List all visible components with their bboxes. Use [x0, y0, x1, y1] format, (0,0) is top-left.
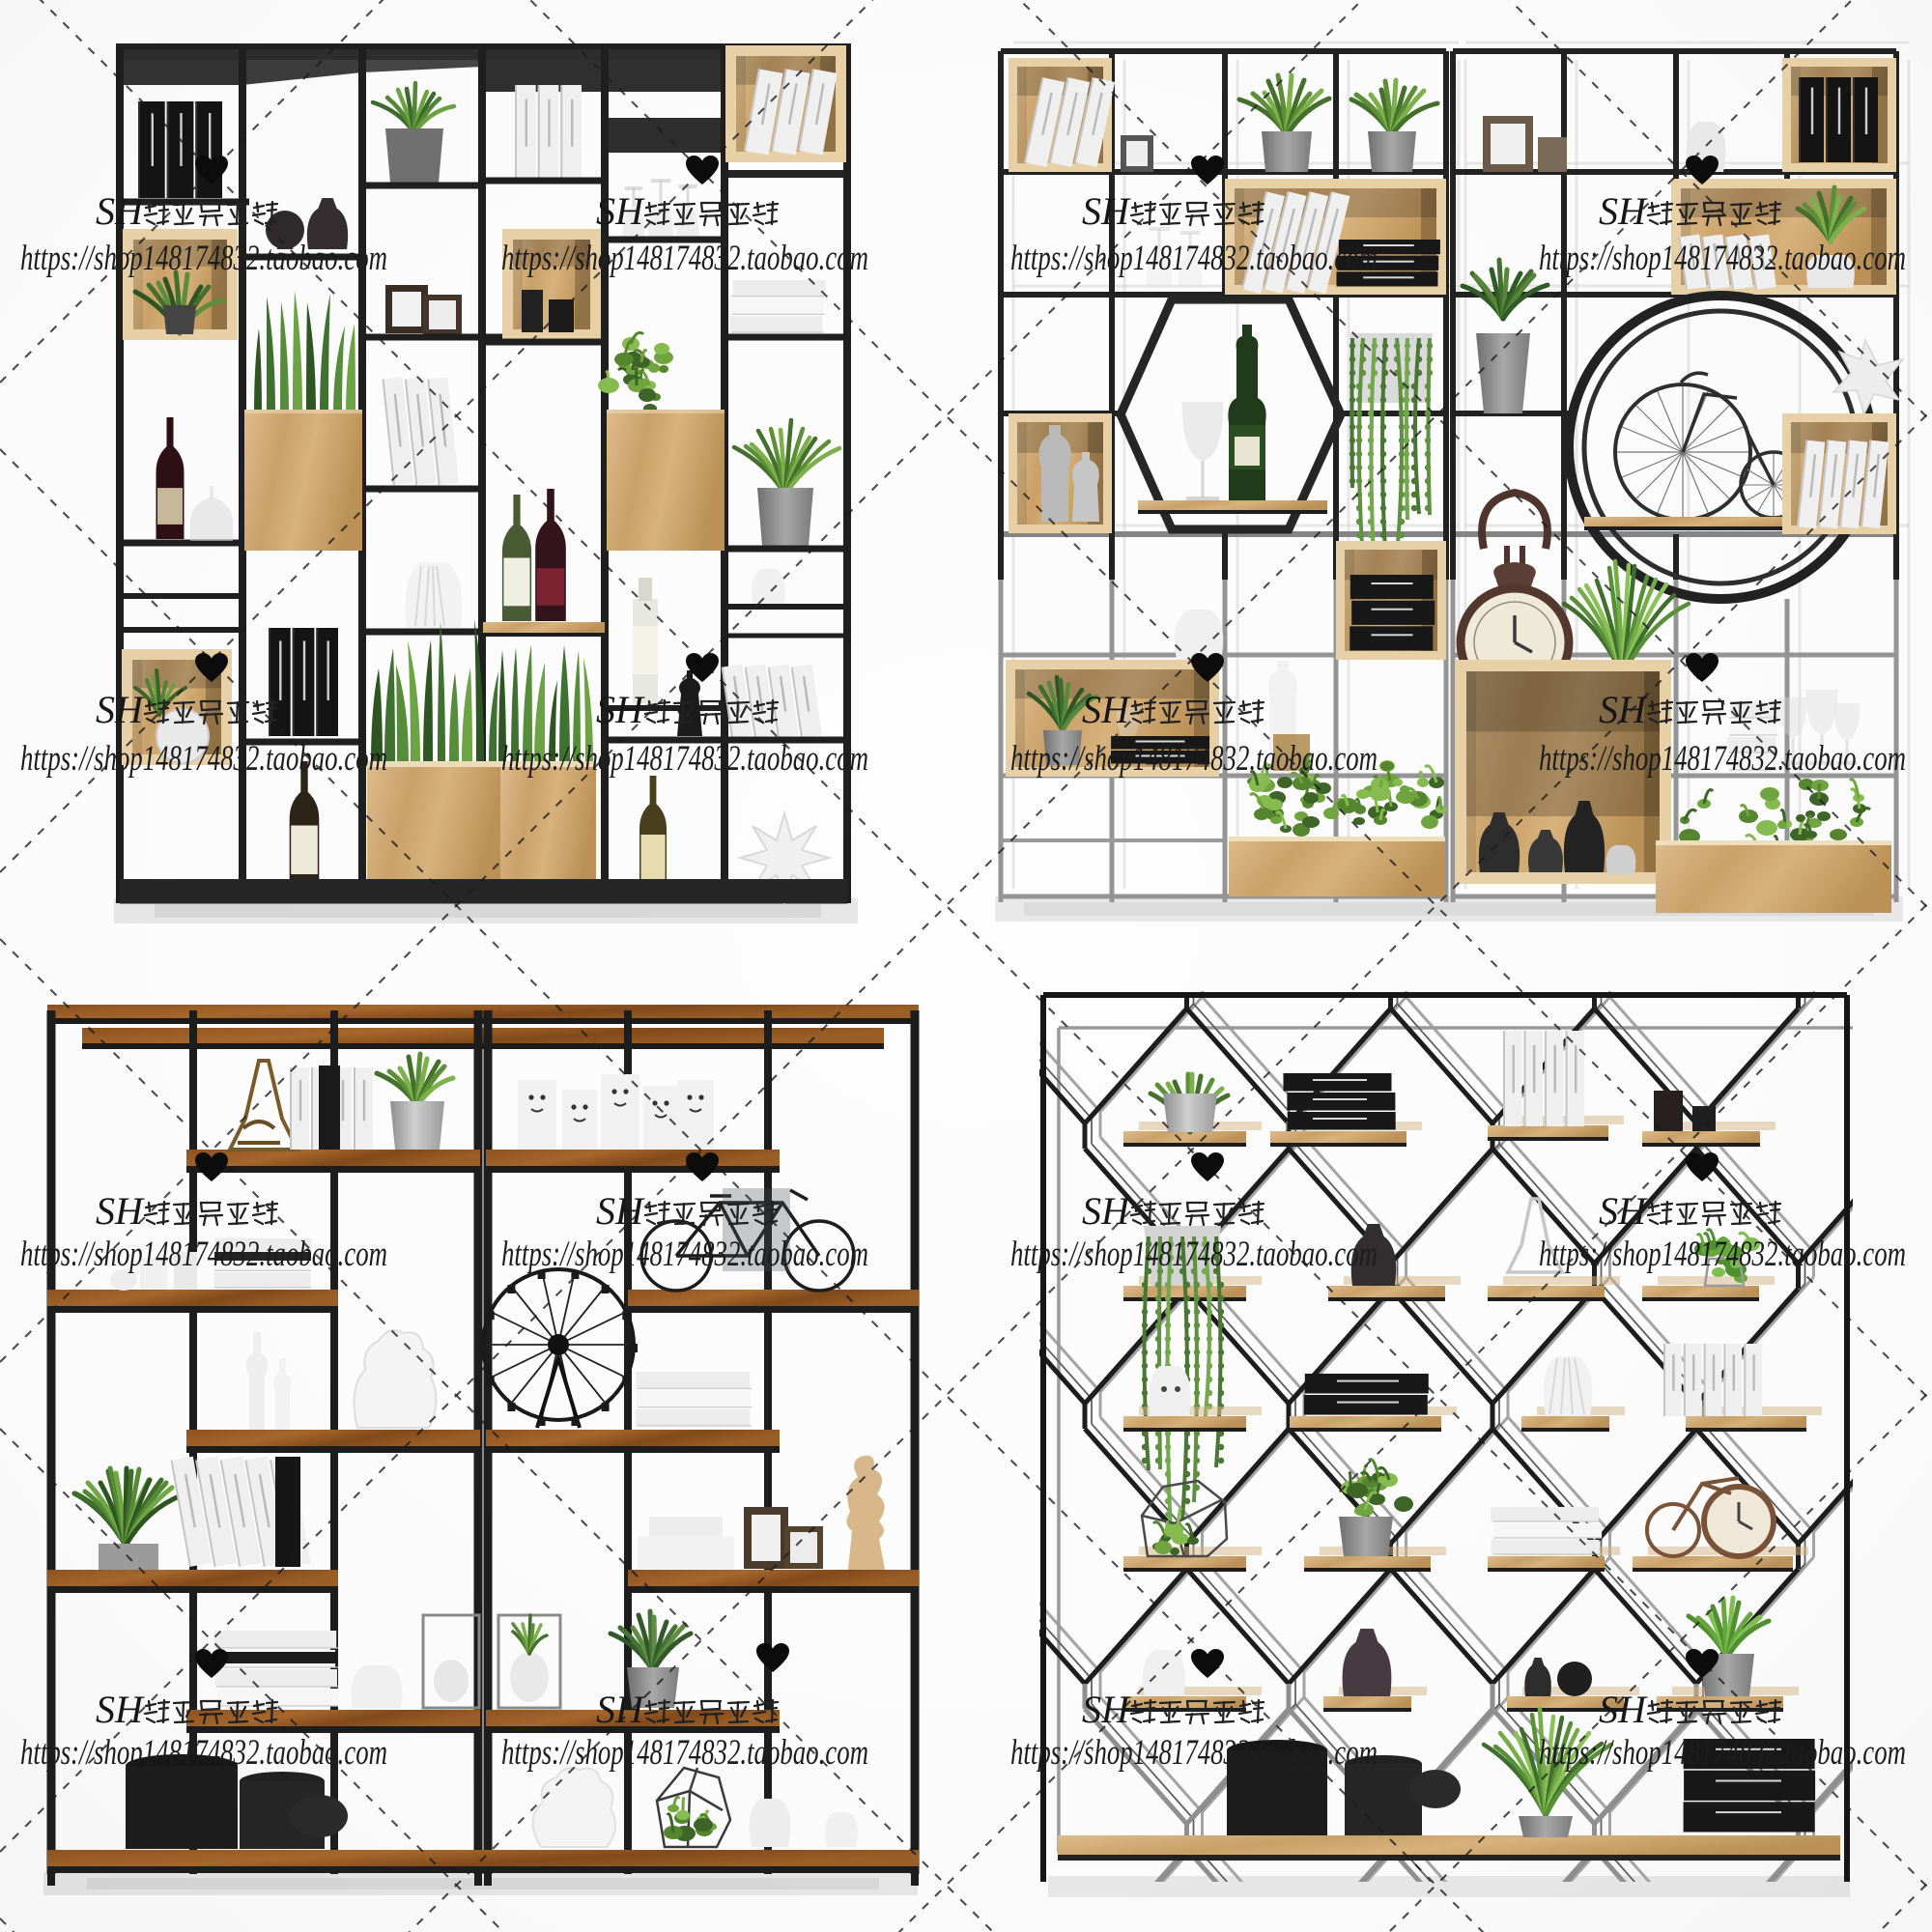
svg-text:SH: SH [1082, 1688, 1131, 1731]
svg-text:https://shop148174832.taobao.c: https://shop148174832.taobao.com [501, 239, 868, 278]
svg-text:https://shop148174832.taobao.c: https://shop148174832.taobao.com [1539, 1235, 1906, 1274]
svg-text:https://shop148174832.taobao.c: https://shop148174832.taobao.com [20, 1235, 387, 1274]
svg-text:SH: SH [96, 1688, 145, 1731]
svg-text:SH: SH [1599, 688, 1648, 731]
svg-text:SH: SH [96, 1189, 145, 1233]
svg-text:SH: SH [1599, 1189, 1648, 1233]
svg-text:https://shop148174832.taobao.c: https://shop148174832.taobao.com [501, 739, 868, 779]
svg-text:SH: SH [96, 688, 145, 731]
svg-text:SH: SH [1082, 1189, 1131, 1233]
svg-text:https://shop148174832.taobao.c: https://shop148174832.taobao.com [1539, 239, 1906, 278]
svg-text:SH: SH [96, 189, 145, 233]
svg-text:SH: SH [1599, 189, 1648, 233]
svg-text:https://shop148174832.taobao.c: https://shop148174832.taobao.com [1010, 1733, 1378, 1773]
svg-text:https://shop148174832.taobao.c: https://shop148174832.taobao.com [20, 239, 387, 278]
svg-text:https://shop148174832.taobao.c: https://shop148174832.taobao.com [1010, 239, 1378, 278]
svg-text:SH: SH [1082, 688, 1131, 731]
svg-text:SH: SH [596, 1189, 645, 1233]
svg-text:SH: SH [596, 1688, 645, 1731]
svg-text:https://shop148174832.taobao.c: https://shop148174832.taobao.com [20, 1733, 387, 1773]
svg-text:https://shop148174832.taobao.c: https://shop148174832.taobao.com [501, 1235, 868, 1274]
svg-text:https://shop148174832.taobao.c: https://shop148174832.taobao.com [1539, 739, 1906, 779]
svg-text:https://shop148174832.taobao.c: https://shop148174832.taobao.com [1010, 1235, 1378, 1274]
svg-text:SH: SH [1082, 189, 1131, 233]
svg-text:https://shop148174832.taobao.c: https://shop148174832.taobao.com [501, 1733, 868, 1773]
svg-text:SH: SH [1599, 1688, 1648, 1731]
svg-text:https://shop148174832.taobao.c: https://shop148174832.taobao.com [1539, 1733, 1906, 1773]
svg-text:https://shop148174832.taobao.c: https://shop148174832.taobao.com [20, 739, 387, 779]
svg-text:SH: SH [596, 688, 645, 731]
svg-text:https://shop148174832.taobao.c: https://shop148174832.taobao.com [1010, 739, 1378, 779]
svg-text:SH: SH [596, 189, 645, 233]
